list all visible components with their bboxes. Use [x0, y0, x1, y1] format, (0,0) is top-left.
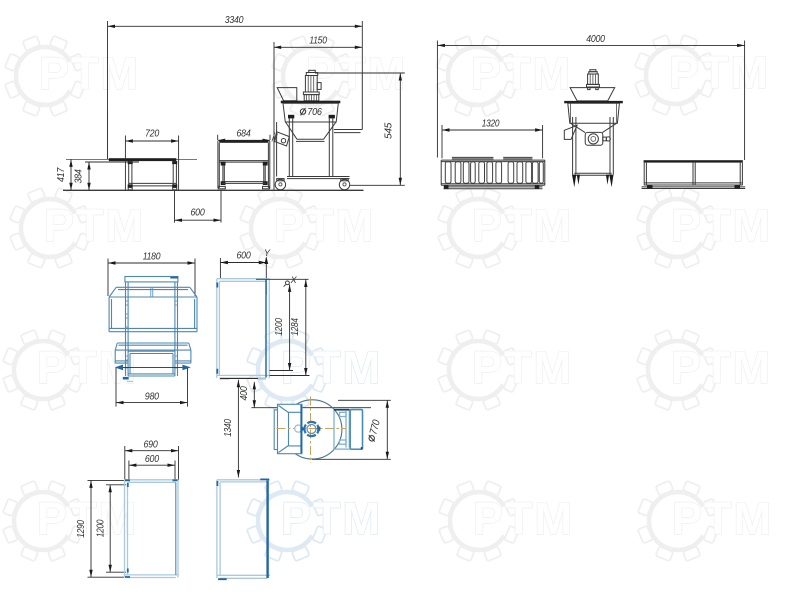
- svg-text:980: 980: [145, 391, 159, 403]
- svg-text:545: 545: [383, 123, 395, 139]
- svg-text:706: 706: [307, 106, 322, 118]
- svg-text:384: 384: [73, 169, 85, 183]
- svg-text:400: 400: [238, 386, 250, 400]
- svg-text:X: X: [290, 275, 298, 285]
- svg-text:1200: 1200: [94, 519, 106, 537]
- svg-text:720: 720: [145, 128, 159, 140]
- svg-text:1290: 1290: [75, 520, 87, 538]
- svg-text:417: 417: [55, 167, 67, 182]
- svg-text:1150: 1150: [309, 35, 327, 47]
- svg-text:1320: 1320: [482, 118, 500, 130]
- svg-text:3340: 3340: [225, 14, 244, 26]
- svg-text:1284: 1284: [289, 318, 301, 336]
- svg-text:770: 770: [367, 418, 382, 435]
- svg-text:684: 684: [237, 128, 251, 140]
- svg-text:600: 600: [237, 250, 251, 262]
- svg-text:1340: 1340: [222, 419, 234, 437]
- svg-text:600: 600: [145, 453, 159, 465]
- svg-text:600: 600: [191, 207, 205, 219]
- svg-text:4000: 4000: [586, 33, 605, 45]
- svg-text:1180: 1180: [143, 251, 161, 263]
- svg-text:1200: 1200: [273, 318, 285, 336]
- svg-text:690: 690: [144, 438, 158, 450]
